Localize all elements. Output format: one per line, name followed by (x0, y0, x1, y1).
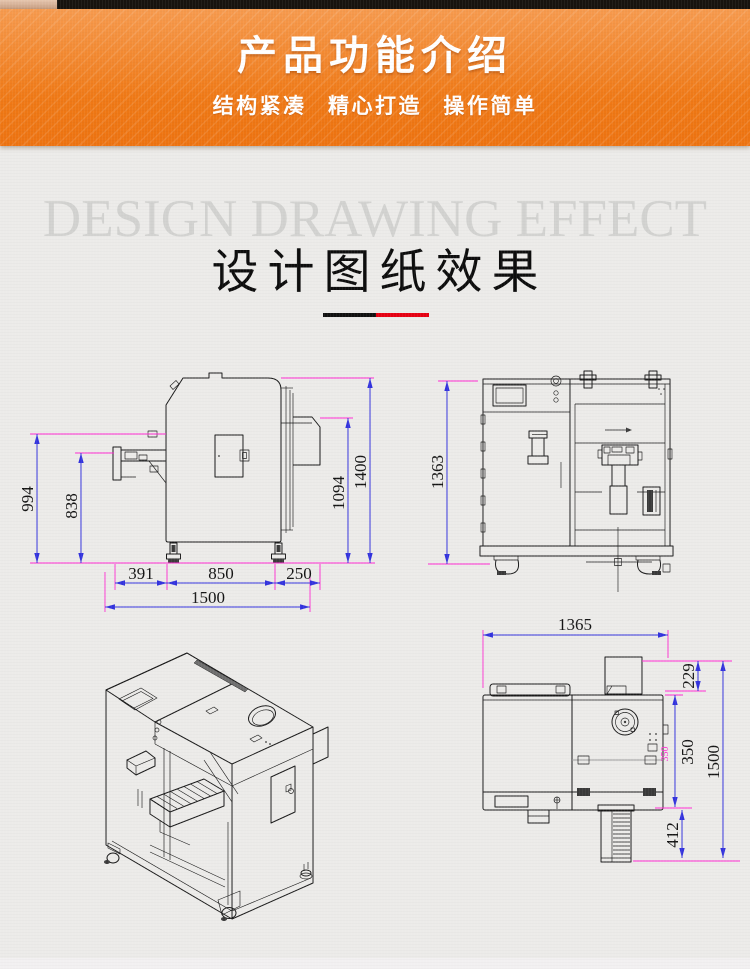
product-detail-page: 产品功能介绍 结构紧凑 精心打造 操作简单 DESIGN DRAWING EFF… (0, 0, 750, 969)
top-strip-left-fragment (0, 0, 57, 9)
iso-top-hole (245, 702, 278, 730)
side-feet (167, 543, 286, 563)
dim-label-412: 412 (663, 822, 682, 848)
dim-label-391: 391 (128, 564, 154, 583)
dim-label-1400: 1400 (351, 455, 370, 489)
bottom-strip (0, 958, 750, 969)
top-machine-outline (483, 657, 668, 862)
iso-control-panel (106, 653, 236, 722)
dim-label-838: 838 (62, 493, 81, 519)
side-machine-outline (113, 373, 320, 563)
front-door-handle (528, 431, 561, 488)
top-screw-symbol (554, 797, 560, 809)
side-view-drawing: 994 838 1400 1094 391 850 250 1500 (20, 360, 400, 620)
top-conveyor (598, 805, 634, 862)
title-divider (323, 313, 429, 317)
side-dimensions: 994 838 1400 1094 391 850 250 1500 (20, 378, 375, 612)
dim-label-1363: 1363 (428, 455, 447, 489)
banner-title: 产品功能介绍 (0, 9, 750, 77)
iso-machine (104, 653, 328, 921)
dim-label-994: 994 (20, 486, 37, 512)
dim-label-850: 850 (208, 564, 234, 583)
iso-right-face (271, 727, 328, 823)
front-machine-outline (480, 371, 673, 592)
divider-red-segment (376, 313, 429, 317)
side-right-panels (281, 386, 320, 533)
banner-subtitle: 结构紧凑 精心打造 操作简单 (0, 90, 750, 120)
front-top-clamps (580, 371, 665, 395)
iso-left-face (127, 748, 170, 860)
dim-label-1500-top: 1500 (704, 745, 723, 779)
divider-black-segment (323, 313, 376, 317)
front-center-mark (586, 527, 652, 592)
dim-label-229: 229 (679, 663, 698, 689)
dim-label-350: 350 (678, 739, 697, 765)
top-valve (612, 709, 638, 735)
iso-vent-rail (194, 660, 248, 692)
top-dimensions: 1365 229 350 350 412 1500 (483, 615, 740, 861)
dim-label-1365: 1365 (558, 615, 592, 634)
front-view-drawing: 1363 (420, 360, 750, 610)
top-view-drawing: 1365 229 350 350 412 1500 (460, 610, 750, 900)
front-control-screen (493, 376, 561, 406)
dim-label-350-marker: 350 (660, 747, 671, 762)
side-conveyor-arm (113, 431, 166, 483)
front-mechanism (575, 428, 672, 531)
isometric-view-drawing (80, 630, 410, 940)
section-title: 设计图纸效果 (0, 233, 750, 302)
dim-label-1500-side: 1500 (191, 588, 225, 607)
top-strip (0, 0, 750, 9)
iso-conveyor (150, 779, 224, 845)
banner: 产品功能介绍 结构紧凑 精心打造 操作简单 (0, 9, 750, 146)
front-base-casters (480, 546, 673, 575)
dim-label-1094: 1094 (329, 476, 348, 511)
dim-label-250: 250 (286, 564, 312, 583)
